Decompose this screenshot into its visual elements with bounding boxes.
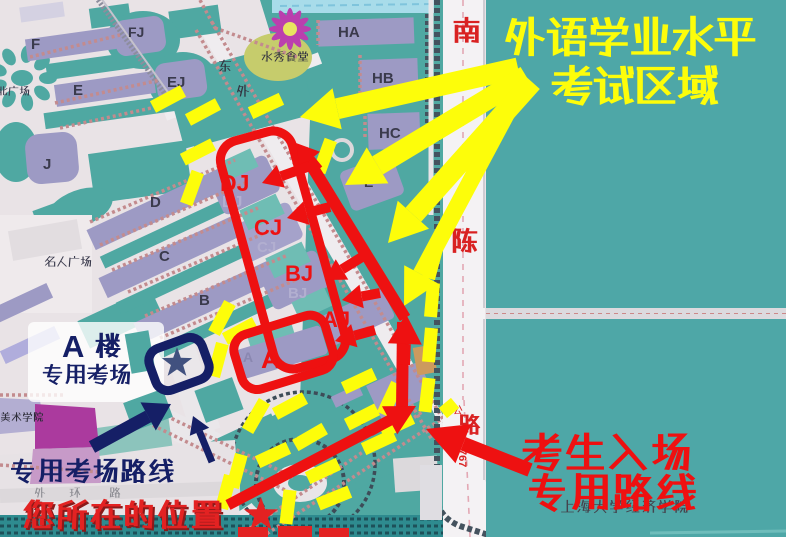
svg-text:A: A [261,344,281,374]
svg-text:DJ: DJ [220,170,249,196]
svg-text:C: C [159,248,170,265]
svg-text:HB: HB [372,70,394,87]
svg-text:FJ: FJ [128,24,144,40]
svg-text:A: A [243,349,253,365]
svg-text:D: D [150,194,161,211]
svg-text:BJ: BJ [288,285,307,302]
svg-text:F: F [31,36,40,53]
svg-text:AJ: AJ [322,307,350,332]
svg-text:J: J [43,156,51,173]
svg-text:A: A [62,329,84,364]
svg-text:B: B [199,292,210,309]
svg-text:HA: HA [338,24,360,41]
svg-text:CJ: CJ [254,215,282,240]
svg-text:HC: HC [379,125,401,142]
svg-text:CJ: CJ [257,239,276,256]
svg-text:BJ: BJ [285,261,313,286]
svg-text:E: E [73,82,83,99]
